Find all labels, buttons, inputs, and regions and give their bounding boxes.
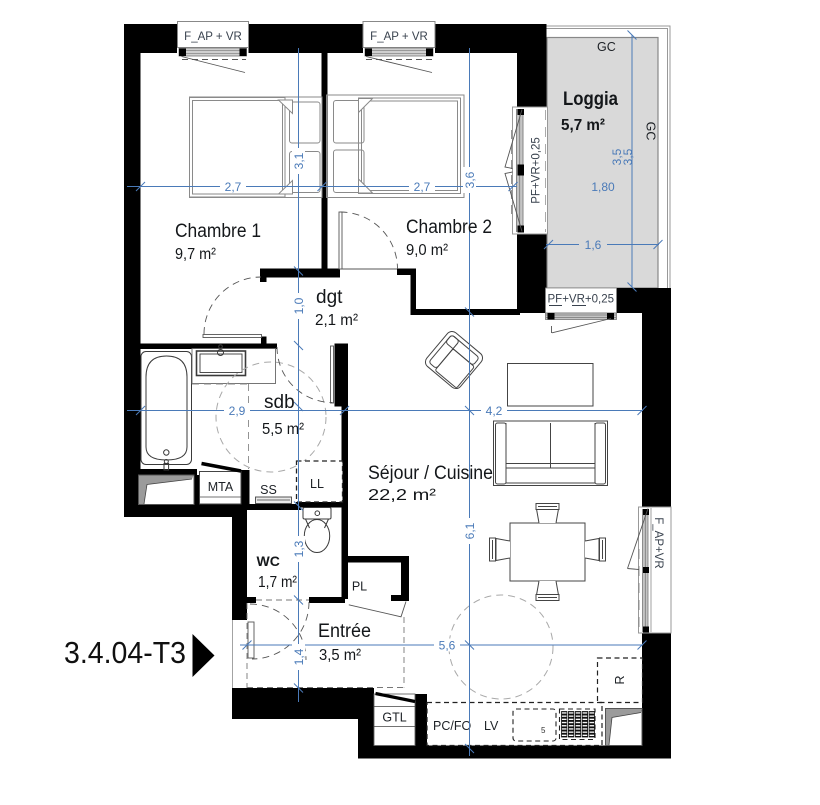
svg-text:sdb: sdb	[264, 392, 295, 413]
svg-text:5: 5	[541, 726, 546, 735]
svg-text:Chambre 2: Chambre 2	[406, 217, 492, 238]
svg-text:9,7 m²: 9,7 m²	[175, 246, 217, 263]
svg-text:WC: WC	[257, 553, 280, 569]
svg-text:Loggia: Loggia	[563, 89, 618, 110]
svg-text:3.4.04-T3: 3.4.04-T3	[64, 635, 186, 670]
svg-text:PF+VR+0,25: PF+VR+0,25	[531, 137, 543, 203]
svg-text:GC: GC	[644, 122, 658, 141]
svg-text:3,1: 3,1	[292, 152, 306, 169]
svg-text:5,5 m²: 5,5 m²	[262, 421, 305, 438]
svg-text:1,3: 1,3	[292, 540, 306, 557]
svg-text:22,2 m²: 22,2 m²	[368, 487, 437, 504]
svg-text:2,1 m²: 2,1 m²	[315, 312, 359, 329]
svg-text:5,7 m²: 5,7 m²	[561, 117, 605, 134]
svg-text:MTA: MTA	[208, 480, 234, 494]
svg-text:9,0 m²: 9,0 m²	[406, 242, 449, 259]
svg-text:1,80: 1,80	[591, 180, 615, 194]
svg-text:3,5 m²: 3,5 m²	[319, 647, 362, 664]
svg-text:2,9: 2,9	[229, 404, 246, 418]
svg-text:4,2: 4,2	[486, 404, 503, 418]
svg-text:6,1: 6,1	[463, 522, 477, 539]
svg-text:LV: LV	[484, 719, 499, 733]
svg-text:PF+VR+0,25: PF+VR+0,25	[548, 294, 614, 306]
svg-text:2,7: 2,7	[225, 180, 242, 194]
svg-text:3,6: 3,6	[463, 171, 477, 188]
svg-text:2,7: 2,7	[414, 180, 431, 194]
svg-text:F_AP + VR: F_AP + VR	[184, 31, 242, 43]
svg-text:R: R	[613, 675, 627, 684]
svg-text:SS: SS	[260, 483, 277, 497]
svg-text:5,6: 5,6	[439, 639, 456, 653]
svg-text:Chambre 1: Chambre 1	[175, 221, 261, 242]
svg-text:PL: PL	[352, 580, 367, 594]
svg-text:LL: LL	[310, 477, 324, 491]
svg-text:GC: GC	[597, 40, 616, 54]
svg-text:F_AP+VR: F_AP+VR	[652, 517, 664, 568]
svg-text:PC/FO: PC/FO	[433, 719, 471, 733]
svg-text:1,0: 1,0	[292, 297, 306, 314]
svg-text:1,4: 1,4	[292, 648, 306, 665]
svg-text:dgt: dgt	[316, 287, 343, 308]
svg-text:GTL: GTL	[382, 711, 406, 725]
svg-text:1,7 m²: 1,7 m²	[258, 574, 298, 591]
svg-text:3,5: 3,5	[621, 148, 635, 165]
svg-text:F_AP + VR: F_AP + VR	[370, 31, 428, 43]
svg-text:Entrée: Entrée	[318, 621, 371, 642]
svg-text:Séjour / Cuisine: Séjour / Cuisine	[368, 463, 493, 484]
svg-text:1,6: 1,6	[585, 238, 602, 252]
